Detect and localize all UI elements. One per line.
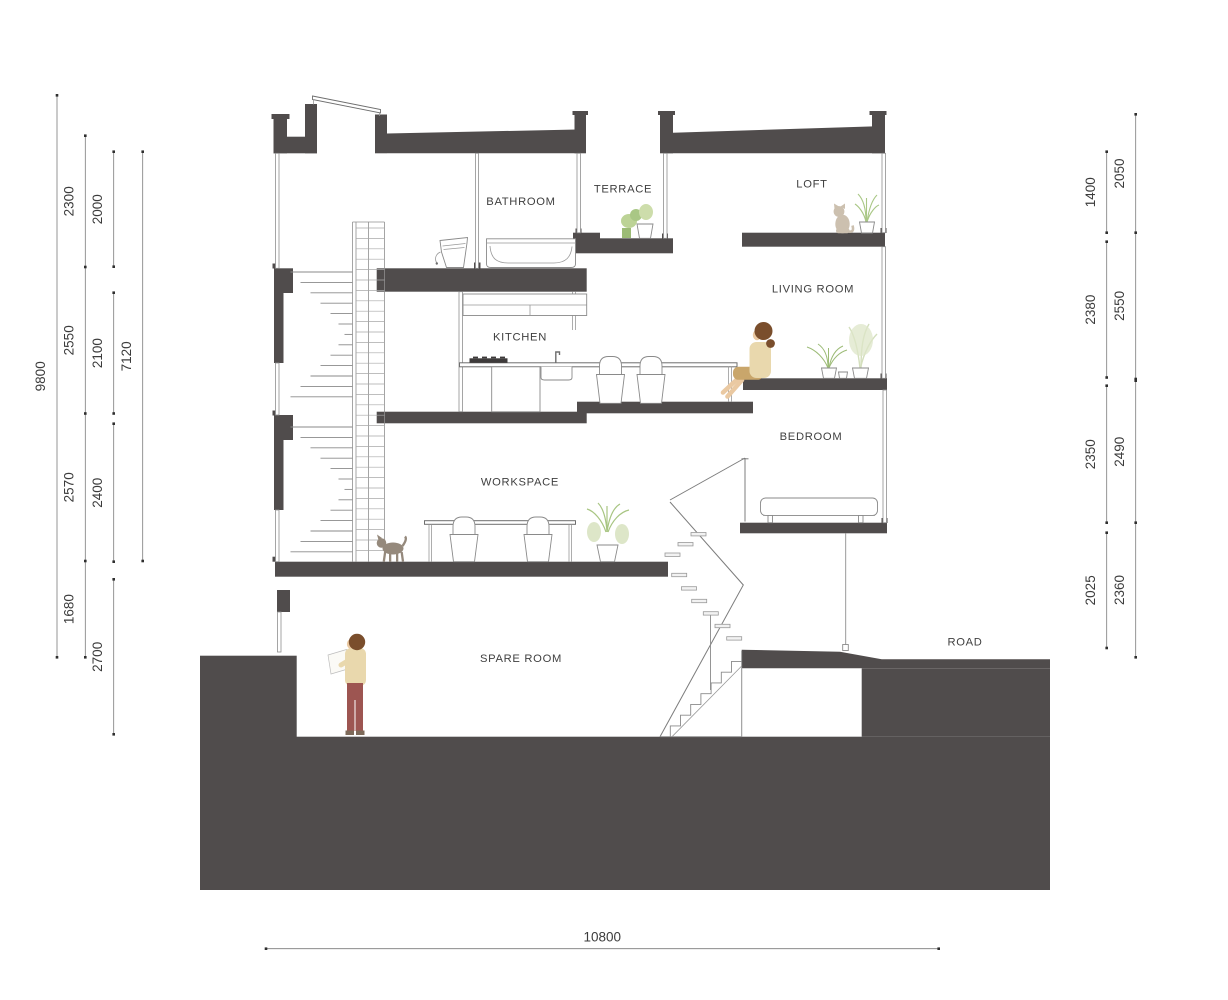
workspace-furniture — [425, 517, 576, 562]
dim-2550-left: 2550 — [62, 325, 77, 355]
counter-top — [460, 363, 738, 367]
stair-solid-steps — [660, 651, 742, 737]
window-left-4 — [278, 612, 282, 652]
figure-standing-person — [328, 634, 366, 735]
stairs-left-treads — [291, 272, 353, 552]
dim-2050: 2050 — [1112, 158, 1127, 188]
roof-right — [665, 126, 885, 153]
slab-terrace — [573, 238, 673, 253]
dim-2700: 2700 — [90, 642, 105, 672]
workspace-plant — [587, 503, 629, 562]
label-terrace: TERRACE — [594, 184, 652, 196]
toilet — [440, 238, 468, 268]
counter-cabinet — [492, 367, 540, 412]
skylight-panel — [313, 96, 381, 113]
loft-plant — [855, 194, 879, 233]
slab-kitchen — [377, 412, 587, 424]
desk-top — [425, 521, 576, 525]
dimensions-bottom: 10800 — [265, 930, 940, 951]
label-loft: LOFT — [796, 179, 827, 191]
dim-2570: 2570 — [62, 472, 77, 502]
dimensions-left: 9800 2300 2550 2570 1680 2000 2100 2400 … — [33, 94, 144, 736]
label-road: ROAD — [947, 637, 982, 649]
dim-2100: 2100 — [90, 338, 105, 368]
faucet — [556, 352, 560, 363]
dim-2490: 2490 — [1112, 437, 1127, 467]
dim-7120: 7120 — [119, 341, 134, 371]
label-living-room: LIVING ROOM — [772, 284, 854, 296]
wall-kitchen-left — [459, 292, 463, 412]
wall-bath-partition — [476, 153, 479, 268]
window-left-2 — [276, 363, 280, 415]
dim-2300: 2300 — [62, 186, 77, 216]
stove — [470, 358, 508, 363]
window-right-1 — [882, 153, 886, 232]
bedroom-furniture — [761, 498, 878, 651]
living-room-plants — [807, 324, 877, 378]
window-right-3 — [883, 390, 887, 523]
figure-dog — [377, 535, 406, 562]
rain-bucket — [843, 645, 849, 651]
roof-left — [387, 130, 577, 154]
bathroom-fixtures — [436, 238, 576, 268]
label-spare-room: SPARE ROOM — [480, 653, 562, 665]
slab-living — [743, 378, 887, 390]
slab-bathroom — [377, 268, 587, 291]
window-loft-left — [664, 153, 668, 238]
dim-1680: 1680 — [62, 594, 77, 624]
road-slab — [742, 650, 1050, 669]
slab-workspace — [275, 562, 668, 577]
dimensions-right: 1400 2380 2350 2025 2050 2550 2490 2360 — [1083, 113, 1137, 659]
ground-mass — [200, 650, 1050, 890]
kitchen-fittings — [460, 294, 738, 412]
dim-10800: 10800 — [584, 930, 622, 945]
bed-mattress — [761, 498, 878, 516]
sink — [541, 367, 572, 380]
label-kitchen: KITCHEN — [493, 332, 547, 344]
dim-2025: 2025 — [1083, 575, 1098, 605]
dim-2400: 2400 — [90, 478, 105, 508]
section-drawing-canvas: BATHROOM TERRACE LOFT LIVING ROOM KITCHE… — [0, 0, 1228, 1000]
window-right-2 — [882, 247, 886, 379]
label-bedroom: BEDROOM — [780, 431, 843, 443]
window-terrace-left — [577, 153, 581, 233]
slab-loft — [742, 233, 885, 247]
dim-2380: 2380 — [1083, 295, 1098, 325]
dim-2360: 2360 — [1112, 575, 1127, 605]
house-section-svg: BATHROOM TERRACE LOFT LIVING ROOM KITCHE… — [0, 0, 1228, 1000]
slab-bedroom — [740, 523, 887, 534]
stairs-center — [660, 458, 749, 737]
dim-2550-right: 2550 — [1112, 291, 1127, 321]
dim-1400: 1400 — [1083, 177, 1098, 207]
dim-9800: 9800 — [33, 361, 48, 391]
terrace-plants — [621, 204, 653, 238]
dim-2000: 2000 — [90, 194, 105, 224]
dim-2350: 2350 — [1083, 439, 1098, 469]
label-bathroom: BATHROOM — [486, 196, 555, 208]
window-left-3 — [276, 510, 280, 562]
figure-cat — [834, 204, 853, 234]
label-workspace: WORKSPACE — [481, 477, 559, 489]
window-left-1 — [276, 153, 280, 268]
